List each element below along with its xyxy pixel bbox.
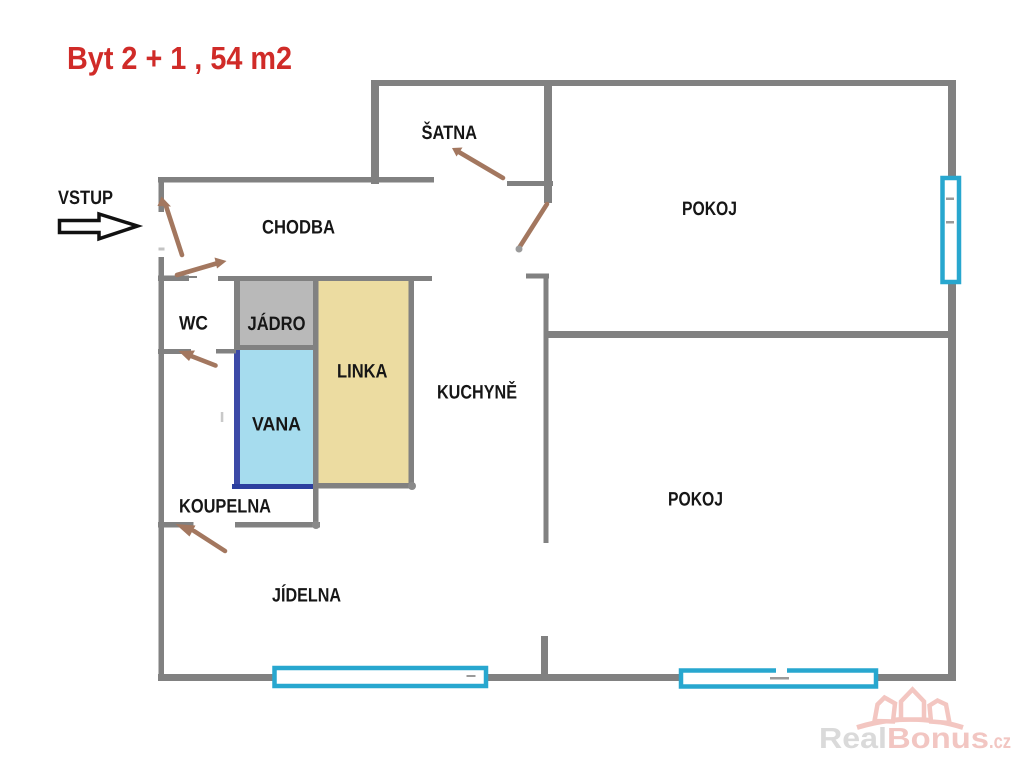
svg-text:WC: WC [179,313,208,335]
svg-text:.cz: .cz [989,731,1011,753]
svg-text:POKOJ: POKOJ [668,489,723,511]
svg-text:Real: Real [819,723,887,755]
svg-text:VANA: VANA [252,414,301,436]
svg-text:ŠATNA: ŠATNA [422,121,478,144]
svg-text:KUCHYNĚ: KUCHYNĚ [437,381,517,404]
svg-text:LINKA: LINKA [337,361,388,383]
svg-text:VSTUP: VSTUP [58,187,113,209]
svg-text:POKOJ: POKOJ [682,198,737,220]
svg-text:JÁDRO: JÁDRO [248,312,306,335]
svg-text:Bonus: Bonus [887,723,989,755]
svg-text:KOUPELNA: KOUPELNA [179,496,271,518]
svg-text:JÍDELNA: JÍDELNA [272,584,341,607]
svg-text:Byt 2 + 1 , 54 m2: Byt 2 + 1 , 54 m2 [67,40,292,76]
svg-text:CHODBA: CHODBA [262,217,335,239]
